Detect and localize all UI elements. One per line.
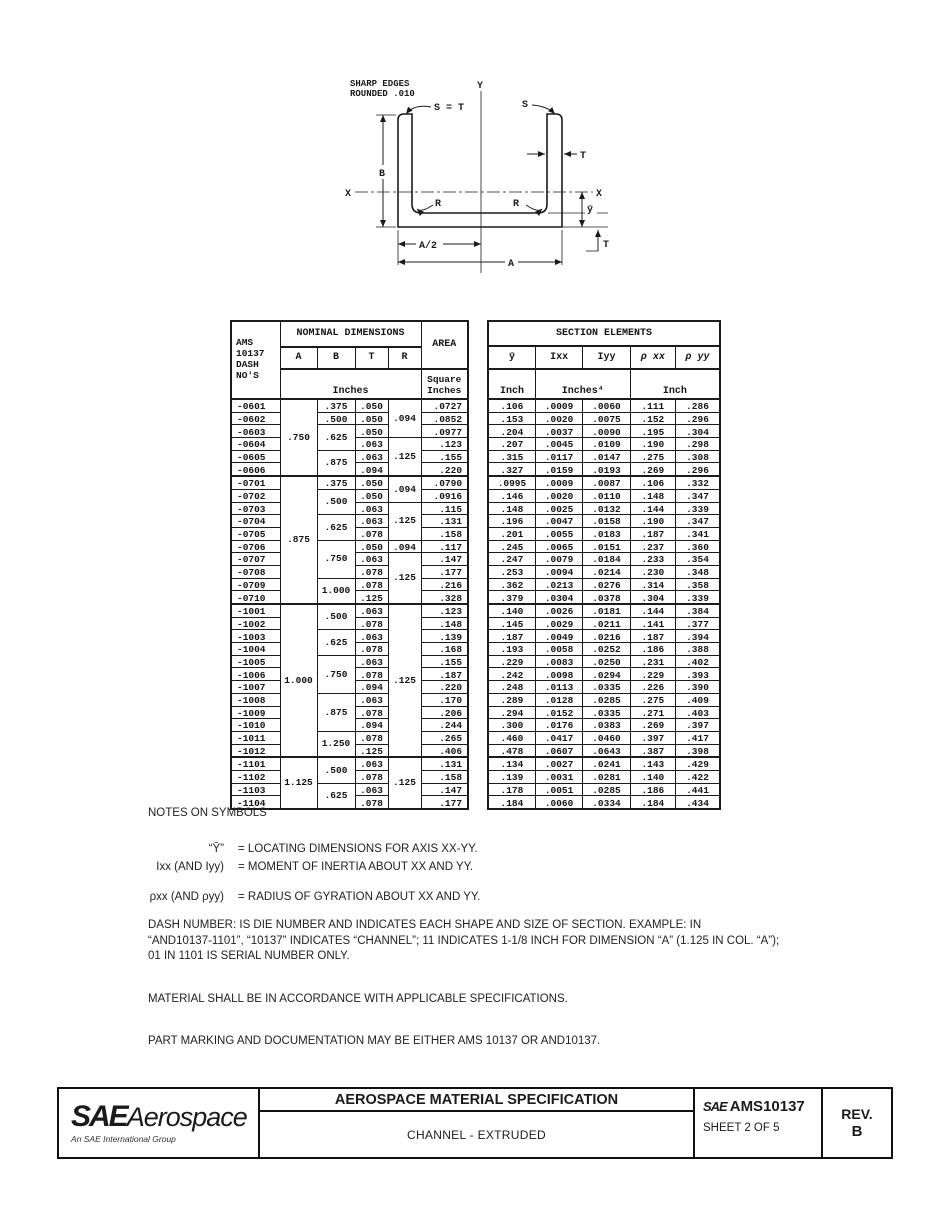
table-cell: .139 xyxy=(488,770,535,783)
table-cell: -1009 xyxy=(231,706,280,719)
table-row: -0602.500.050.0852 xyxy=(231,412,468,425)
table-cell: .348 xyxy=(676,565,720,578)
table-cell: .0250 xyxy=(583,655,630,668)
section-elements-table-wrap: SECTION ELEMENTS ȳ Ixx Iyy ρ xx ρ yy Inc… xyxy=(487,320,721,810)
table-cell: .134 xyxy=(488,757,535,770)
table-cell: .341 xyxy=(676,527,720,540)
table-cell: .094 xyxy=(388,399,421,438)
spec-subtitle: CHANNEL - EXTRUDED xyxy=(260,1112,693,1157)
table-cell: .304 xyxy=(676,425,720,438)
table-cell: -0709 xyxy=(231,578,280,591)
table-row: .187.0049.0216.187.394 xyxy=(488,630,720,643)
sae-small-logo: SAE xyxy=(703,1099,727,1114)
table-cell: .123 xyxy=(421,604,468,617)
header-col-ybar: ȳ xyxy=(488,346,535,369)
spec-title-cell: AEROSPACE MATERIAL SPECIFICATION CHANNEL… xyxy=(260,1089,693,1157)
table-cell: .0852 xyxy=(421,412,468,425)
table-cell: .0037 xyxy=(535,425,582,438)
table-cell: .078 xyxy=(355,706,388,719)
table-row: .196.0047.0158.190.347 xyxy=(488,515,720,528)
table-cell: .0335 xyxy=(583,681,630,694)
table-cell: .0009 xyxy=(535,399,582,412)
table-cell: .0214 xyxy=(583,565,630,578)
table-row: .204.0037.0090.195.304 xyxy=(488,425,720,438)
table-cell: .204 xyxy=(488,425,535,438)
table-cell: .625 xyxy=(317,425,355,450)
table-cell: -1102 xyxy=(231,770,280,783)
table-row: .362.0213.0276.314.358 xyxy=(488,578,720,591)
table-cell: -0605 xyxy=(231,450,280,463)
section-elements-table: SECTION ELEMENTS ȳ Ixx Iyy ρ xx ρ yy Inc… xyxy=(487,320,721,810)
table-row: .379.0304.0378.304.339 xyxy=(488,591,720,604)
table-cell: .0460 xyxy=(583,731,630,744)
table-cell: -0706 xyxy=(231,540,280,553)
table-cell: .0281 xyxy=(583,770,630,783)
table-row: -11011.125.500.063.125.131 xyxy=(231,757,468,770)
table-cell: .750 xyxy=(317,655,355,693)
table-cell: .226 xyxy=(630,681,675,694)
table-cell: .0607 xyxy=(535,744,582,757)
table-cell: .0065 xyxy=(535,540,582,553)
table-cell: .078 xyxy=(355,565,388,578)
table-cell: .625 xyxy=(317,515,355,540)
table-cell: -1002 xyxy=(231,617,280,630)
table-cell: .177 xyxy=(421,565,468,578)
header-area-units: Square Inches xyxy=(421,369,468,399)
table-cell: .125 xyxy=(388,553,421,604)
table-cell: .500 xyxy=(317,412,355,425)
header-col-ixx: Ixx xyxy=(535,346,582,369)
notes-heading: NOTES ON SYMBOLS xyxy=(148,806,893,822)
table-cell: .0051 xyxy=(535,783,582,796)
table-cell: .0055 xyxy=(535,527,582,540)
table-row: .153.0020.0075.152.296 xyxy=(488,412,720,425)
header-col-t: T xyxy=(355,347,388,369)
table-cell: .140 xyxy=(630,770,675,783)
table-cell: .0147 xyxy=(583,450,630,463)
table-cell: .153 xyxy=(488,412,535,425)
table-row: .327.0159.0193.269.296 xyxy=(488,463,720,476)
label-s: S xyxy=(522,100,528,111)
table-cell: 1.000 xyxy=(317,578,355,604)
sharp-edges-note-line1: SHARP EDGES xyxy=(350,79,410,89)
table-cell: .0158 xyxy=(583,515,630,528)
table-row: .146.0020.0110.148.347 xyxy=(488,489,720,502)
table-cell: .0159 xyxy=(535,463,582,476)
table-cell: .0058 xyxy=(535,643,582,656)
table-row: -0605.875.063.155 xyxy=(231,450,468,463)
table-cell: .0152 xyxy=(535,706,582,719)
table-cell: .158 xyxy=(421,527,468,540)
table-cell: .168 xyxy=(421,643,468,656)
table-cell: .253 xyxy=(488,565,535,578)
table-cell: .078 xyxy=(355,731,388,744)
table-cell: -0602 xyxy=(231,412,280,425)
nominal-dimensions-table-wrap: AMS 10137 DASH NO'S NOMINAL DIMENSIONS A… xyxy=(230,320,469,810)
table-cell: .398 xyxy=(676,744,720,757)
table-cell: .063 xyxy=(355,515,388,528)
table-cell: .050 xyxy=(355,489,388,502)
table-cell: .078 xyxy=(355,578,388,591)
table-cell: .308 xyxy=(676,450,720,463)
table-cell: .406 xyxy=(421,744,468,757)
table-row: .207.0045.0109.190.298 xyxy=(488,438,720,451)
table-cell: .360 xyxy=(676,540,720,553)
table-cell: .286 xyxy=(676,399,720,412)
table-cell: .0025 xyxy=(535,502,582,515)
table-cell: .131 xyxy=(421,757,468,770)
table-cell: .0087 xyxy=(583,476,630,489)
table-cell: .0183 xyxy=(583,527,630,540)
table-row: .315.0117.0147.275.308 xyxy=(488,450,720,463)
table-cell: .0027 xyxy=(535,757,582,770)
table-cell: .460 xyxy=(488,731,535,744)
table-cell: .117 xyxy=(421,540,468,553)
table-row: .460.0417.0460.397.417 xyxy=(488,731,720,744)
table-cell: .0252 xyxy=(583,643,630,656)
table-cell: .147 xyxy=(421,553,468,566)
table-cell: .0026 xyxy=(535,604,582,617)
table-cell: .0727 xyxy=(421,399,468,412)
note-dash-number: DASH NUMBER: IS DIE NUMBER AND INDICATES… xyxy=(148,918,893,965)
table-cell: .206 xyxy=(421,706,468,719)
table-row: .178.0051.0285.186.441 xyxy=(488,783,720,796)
header-col-a: A xyxy=(280,347,317,369)
table-row: -0603.625.050.0977 xyxy=(231,425,468,438)
revision-label: REV. xyxy=(841,1106,872,1122)
notes-section: NOTES ON SYMBOLS “Ȳ” = LOCATING DIMENSIO… xyxy=(148,806,893,1050)
table-row: -0701.875.375.050.094.0790 xyxy=(231,476,468,489)
table-cell: .0045 xyxy=(535,438,582,451)
table-cell: .275 xyxy=(630,693,675,706)
table-cell: .397 xyxy=(630,731,675,744)
table-cell: -0707 xyxy=(231,553,280,566)
table-cell: .125 xyxy=(388,604,421,757)
table-cell: .0049 xyxy=(535,630,582,643)
table-cell: .144 xyxy=(630,604,675,617)
table-cell: .429 xyxy=(676,757,720,770)
table-cell: .0285 xyxy=(583,693,630,706)
table-cell: -1101 xyxy=(231,757,280,770)
dim-label-a: A xyxy=(508,259,514,270)
table-cell: .314 xyxy=(630,578,675,591)
table-cell: .362 xyxy=(488,578,535,591)
table-cell: -0702 xyxy=(231,489,280,502)
table-cell: .050 xyxy=(355,476,388,489)
table-cell: .422 xyxy=(676,770,720,783)
document-number-cell: SAE AMS10137 SHEET 2 OF 5 xyxy=(693,1089,821,1157)
table-cell: .094 xyxy=(388,476,421,502)
table-row: -0601.750.375.050.094.0727 xyxy=(231,399,468,412)
table-cell: .078 xyxy=(355,527,388,540)
table-cell: .170 xyxy=(421,693,468,706)
table-cell: .0128 xyxy=(535,693,582,706)
table-cell: .0151 xyxy=(583,540,630,553)
table-row: -07091.000.078.216 xyxy=(231,578,468,591)
table-cell: .0181 xyxy=(583,604,630,617)
table-cell: .152 xyxy=(630,412,675,425)
revision-cell: REV. B xyxy=(821,1089,891,1157)
section-table-body: .106.0009.0060.111.286.153.0020.0075.152… xyxy=(488,399,720,809)
table-cell: .393 xyxy=(676,668,720,681)
table-cell: .0213 xyxy=(535,578,582,591)
header-col-rho-xx: ρ xx xyxy=(630,346,675,369)
table-cell: -1007 xyxy=(231,681,280,694)
table-cell: .193 xyxy=(488,643,535,656)
table-cell: .296 xyxy=(676,463,720,476)
table-cell: .296 xyxy=(676,412,720,425)
table-cell: .158 xyxy=(421,770,468,783)
table-cell: .347 xyxy=(676,515,720,528)
table-cell: 1.125 xyxy=(280,757,317,809)
sheet-number: SHEET 2 OF 5 xyxy=(703,1122,821,1134)
table-cell: -1008 xyxy=(231,693,280,706)
table-cell: -1010 xyxy=(231,719,280,732)
table-cell: .354 xyxy=(676,553,720,566)
table-cell: .237 xyxy=(630,540,675,553)
table-cell: -0710 xyxy=(231,591,280,604)
table-cell: .140 xyxy=(488,604,535,617)
table-cell: .500 xyxy=(317,604,355,630)
table-cell: .275 xyxy=(630,450,675,463)
table-cell: .0294 xyxy=(583,668,630,681)
table-cell: -0701 xyxy=(231,476,280,489)
table-cell: .0075 xyxy=(583,412,630,425)
table-cell: .0047 xyxy=(535,515,582,528)
table-cell: .155 xyxy=(421,450,468,463)
header-col-iyy: Iyy xyxy=(583,346,630,369)
symbol-def-rho: ρxx (AND ρyy) = RADIUS OF GYRATION ABOUT… xyxy=(148,890,893,906)
table-cell: .187 xyxy=(630,630,675,643)
table-cell: .0113 xyxy=(535,681,582,694)
table-cell: 1.000 xyxy=(280,604,317,757)
table-cell: .0216 xyxy=(583,630,630,643)
table-cell: .094 xyxy=(388,540,421,553)
table-cell: .094 xyxy=(355,463,388,476)
table-cell: -1103 xyxy=(231,783,280,796)
table-cell: .0020 xyxy=(535,412,582,425)
table-cell: .0211 xyxy=(583,617,630,630)
table-cell: .050 xyxy=(355,540,388,553)
table-cell: .377 xyxy=(676,617,720,630)
spec-title: AEROSPACE MATERIAL SPECIFICATION xyxy=(260,1089,693,1112)
symbol-def-ixx: Ixx (AND Iyy) = MOMENT OF INERTIA ABOUT … xyxy=(148,860,893,876)
table-cell: .231 xyxy=(630,655,675,668)
table-cell: .063 xyxy=(355,655,388,668)
table-cell: .123 xyxy=(421,438,468,451)
table-cell: .230 xyxy=(630,565,675,578)
table-cell: .078 xyxy=(355,770,388,783)
table-cell: .478 xyxy=(488,744,535,757)
table-row: -0702.500.050.0916 xyxy=(231,489,468,502)
table-cell: .190 xyxy=(630,438,675,451)
table-row: .134.0027.0241.143.429 xyxy=(488,757,720,770)
table-row: -1003.625.063.139 xyxy=(231,630,468,643)
table-cell: .190 xyxy=(630,515,675,528)
table-cell: .500 xyxy=(317,757,355,783)
table-cell: .131 xyxy=(421,515,468,528)
table-cell: .375 xyxy=(317,399,355,412)
table-cell: .187 xyxy=(630,527,675,540)
table-row: .0995.0009.0087.106.332 xyxy=(488,476,720,489)
table-cell: .269 xyxy=(630,463,675,476)
table-cell: .0383 xyxy=(583,719,630,732)
table-cell: -1004 xyxy=(231,643,280,656)
table-cell: .289 xyxy=(488,693,535,706)
symbol-term: ρxx (AND ρyy) xyxy=(148,890,224,906)
table-cell: .347 xyxy=(676,489,720,502)
table-cell: .145 xyxy=(488,617,535,630)
table-cell: .229 xyxy=(630,668,675,681)
table-cell: .106 xyxy=(488,399,535,412)
table-cell: .875 xyxy=(280,476,317,604)
label-r-right: R xyxy=(513,199,519,210)
table-cell: .216 xyxy=(421,578,468,591)
table-cell: .125 xyxy=(355,591,388,604)
table-cell: .315 xyxy=(488,450,535,463)
table-cell: .0117 xyxy=(535,450,582,463)
table-cell: .379 xyxy=(488,591,535,604)
table-cell: .384 xyxy=(676,604,720,617)
table-cell: .397 xyxy=(676,719,720,732)
channel-section-diagram: SHARP EDGES ROUNDED .010 Y X X B S = T S… xyxy=(330,75,640,280)
header-nominal-dimensions: NOMINAL DIMENSIONS xyxy=(280,321,421,347)
table-cell: .339 xyxy=(676,502,720,515)
table-cell: .242 xyxy=(488,668,535,681)
table-cell: .247 xyxy=(488,553,535,566)
table-cell: .0079 xyxy=(535,553,582,566)
table-cell: .0090 xyxy=(583,425,630,438)
header-col-rho-yy: ρ yy xyxy=(676,346,720,369)
table-cell: .0790 xyxy=(421,476,468,489)
table-cell: .229 xyxy=(488,655,535,668)
table-cell: .0335 xyxy=(583,706,630,719)
table-cell: .078 xyxy=(355,643,388,656)
table-cell: .0995 xyxy=(488,476,535,489)
title-block: SAE Aerospace An SAE International Group… xyxy=(57,1087,893,1159)
table-cell: .387 xyxy=(630,744,675,757)
x-axis-label-left: X xyxy=(345,189,351,200)
table-cell: -0603 xyxy=(231,425,280,438)
table-cell: .394 xyxy=(676,630,720,643)
symbol-def-ybar: “Ȳ” = LOCATING DIMENSIONS FOR AXIS XX-YY… xyxy=(148,842,893,858)
table-cell: -0703 xyxy=(231,502,280,515)
table-cell: .141 xyxy=(630,617,675,630)
table-cell: .050 xyxy=(355,425,388,438)
table-cell: .417 xyxy=(676,731,720,744)
table-cell: .0285 xyxy=(583,783,630,796)
table-cell: .409 xyxy=(676,693,720,706)
nominal-dimensions-table: AMS 10137 DASH NO'S NOMINAL DIMENSIONS A… xyxy=(230,320,469,810)
table-cell: .332 xyxy=(676,476,720,489)
table-row: .201.0055.0183.187.341 xyxy=(488,527,720,540)
table-cell: .148 xyxy=(488,502,535,515)
dim-label-t-flange: T xyxy=(603,240,609,251)
table-cell: .390 xyxy=(676,681,720,694)
table-cell: .186 xyxy=(630,643,675,656)
table-row: .478.0607.0643.387.398 xyxy=(488,744,720,757)
table-cell: .328 xyxy=(421,591,468,604)
table-row: .145.0029.0211.141.377 xyxy=(488,617,720,630)
table-cell: .220 xyxy=(421,681,468,694)
table-cell: .155 xyxy=(421,655,468,668)
header-unit-inches4: Inches⁴ xyxy=(535,369,630,399)
header-dash-nos: AMS 10137 DASH NO'S xyxy=(231,321,280,399)
table-row: .242.0098.0294.229.393 xyxy=(488,668,720,681)
note-part-marking: PART MARKING AND DOCUMENTATION MAY BE EI… xyxy=(148,1034,893,1050)
table-cell: .186 xyxy=(630,783,675,796)
header-col-b: B xyxy=(317,347,355,369)
header-unit-inch-ybar: Inch xyxy=(488,369,535,399)
table-cell: .327 xyxy=(488,463,535,476)
table-cell: .269 xyxy=(630,719,675,732)
table-cell: .402 xyxy=(676,655,720,668)
table-cell: .0643 xyxy=(583,744,630,757)
table-cell: .125 xyxy=(388,438,421,477)
table-cell: .106 xyxy=(630,476,675,489)
table-row: -1103.625.063.147 xyxy=(231,783,468,796)
table-cell: .0132 xyxy=(583,502,630,515)
header-area: AREA xyxy=(421,321,468,369)
table-cell: .115 xyxy=(421,502,468,515)
table-cell: .750 xyxy=(317,540,355,578)
table-row: .193.0058.0252.186.388 xyxy=(488,643,720,656)
table-cell: .375 xyxy=(317,476,355,489)
table-cell: .875 xyxy=(317,693,355,731)
table-cell: .125 xyxy=(388,502,421,540)
dim-label-b: B xyxy=(379,169,385,180)
table-cell: .187 xyxy=(488,630,535,643)
table-cell: .063 xyxy=(355,630,388,643)
table-cell: .0031 xyxy=(535,770,582,783)
table-cell: .750 xyxy=(280,399,317,476)
table-row: -0706.750.050.094.117 xyxy=(231,540,468,553)
table-cell: -1012 xyxy=(231,744,280,757)
table-cell: .143 xyxy=(630,757,675,770)
table-row: .106.0009.0060.111.286 xyxy=(488,399,720,412)
table-cell: .300 xyxy=(488,719,535,732)
table-cell: .063 xyxy=(355,553,388,566)
table-row: .289.0128.0285.275.409 xyxy=(488,693,720,706)
table-cell: .304 xyxy=(630,591,675,604)
table-cell: -0705 xyxy=(231,527,280,540)
table-cell: -0601 xyxy=(231,399,280,412)
table-cell: 1.250 xyxy=(317,731,355,757)
table-cell: .063 xyxy=(355,502,388,515)
x-axis-label-right: X xyxy=(596,189,602,200)
symbol-term: Ixx (AND Iyy) xyxy=(148,860,224,876)
table-cell: .063 xyxy=(355,450,388,463)
table-cell: -1003 xyxy=(231,630,280,643)
dim-label-t-wall: T xyxy=(580,151,586,162)
table-row: -10011.000.500.063.125.123 xyxy=(231,604,468,617)
y-axis-label: Y xyxy=(477,81,483,92)
table-cell: .244 xyxy=(421,719,468,732)
table-cell: .298 xyxy=(676,438,720,451)
table-cell: .146 xyxy=(488,489,535,502)
table-cell: .094 xyxy=(355,719,388,732)
table-cell: .078 xyxy=(355,668,388,681)
symbol-definition: = RADIUS OF GYRATION ABOUT XX AND YY. xyxy=(238,890,480,906)
nominal-table-body: -0601.750.375.050.094.0727-0602.500.050.… xyxy=(231,399,468,809)
table-cell: .500 xyxy=(317,489,355,514)
table-cell: .233 xyxy=(630,553,675,566)
table-cell: .220 xyxy=(421,463,468,476)
table-cell: -1011 xyxy=(231,731,280,744)
table-cell: -0606 xyxy=(231,463,280,476)
table-row: -1005.750.063.155 xyxy=(231,655,468,668)
revision-value: B xyxy=(852,1123,863,1140)
